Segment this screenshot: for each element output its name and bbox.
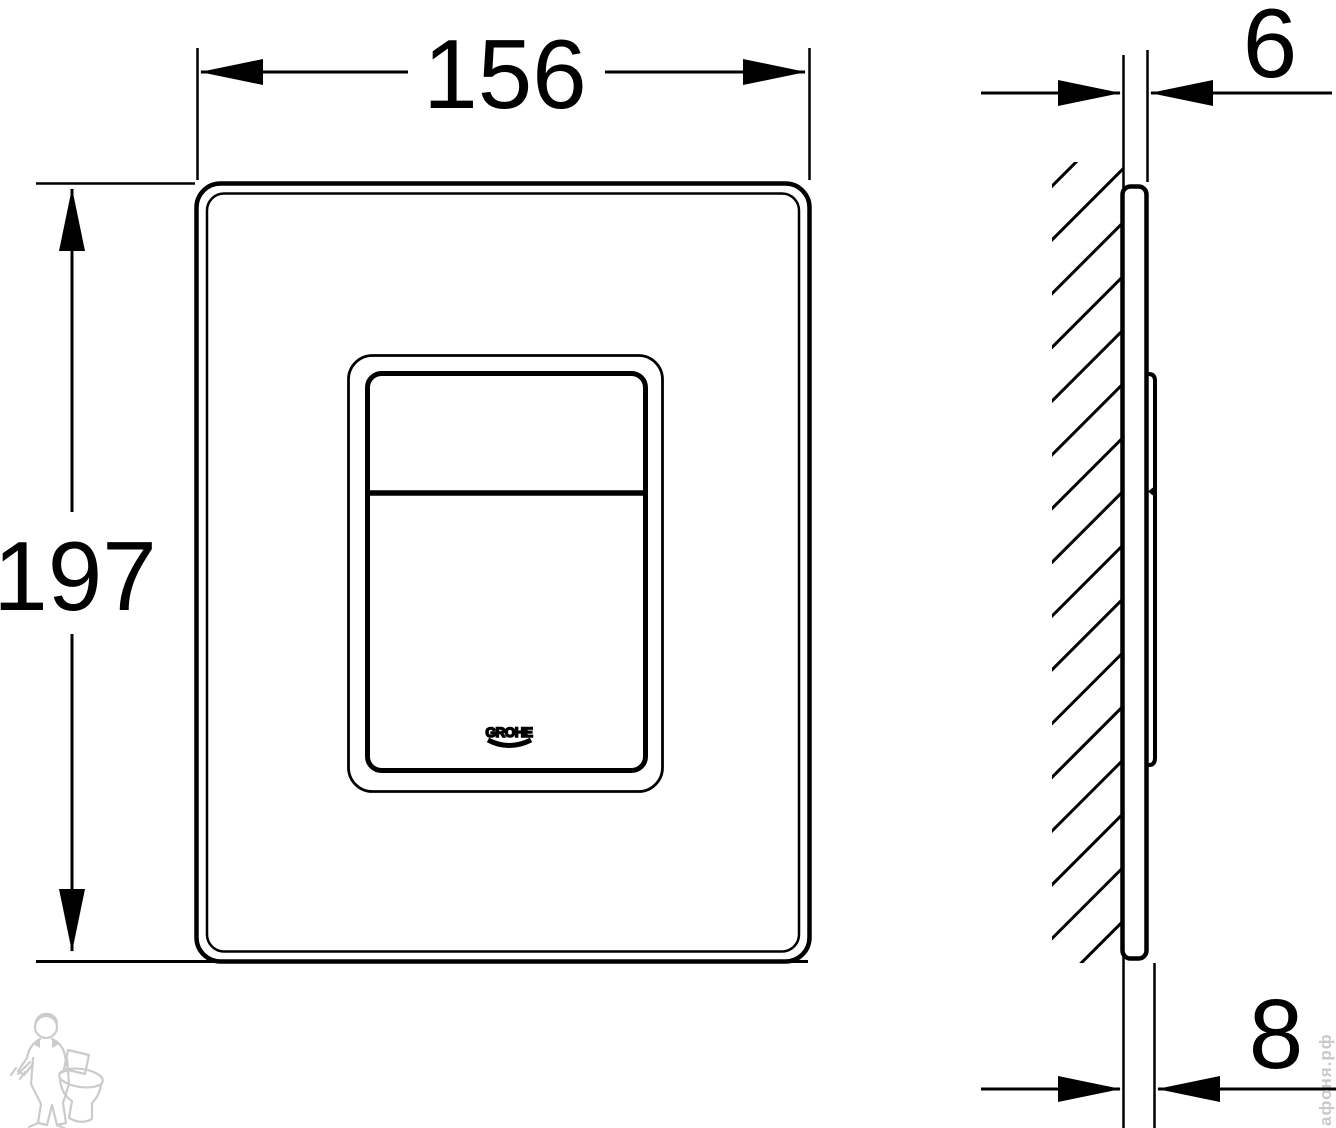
arrowhead-up	[59, 188, 85, 251]
dimension-height: 197	[0, 184, 808, 962]
technical-drawing-canvas: GROHE 156 197	[0, 0, 1336, 1128]
arrowhead-right	[1058, 1076, 1121, 1102]
arrowhead-down	[59, 889, 85, 952]
plate-bevel-line	[207, 194, 799, 952]
arrowhead-left	[1157, 1076, 1220, 1102]
dimension-height-value: 197	[0, 521, 157, 631]
plate-outline	[197, 184, 810, 962]
arrowhead-left	[200, 59, 263, 85]
grohe-logo-text: GROHE	[485, 725, 533, 740]
dimension-width-value: 156	[423, 19, 587, 129]
plumber-watermark-icon	[11, 1014, 104, 1128]
toilet-seat	[58, 1066, 104, 1090]
dimension-depth: 8	[981, 963, 1336, 1128]
site-watermark-text: афоня.рф	[1316, 1033, 1335, 1126]
button-split-notch	[1148, 485, 1156, 498]
wall-hatching	[1052, 162, 1123, 963]
grohe-logo: GROHE	[485, 725, 533, 746]
dimension-depth-value: 8	[1249, 979, 1304, 1089]
grohe-logo-swoosh	[488, 740, 531, 746]
side-view	[1052, 55, 1156, 1128]
plate-section	[1123, 187, 1147, 959]
dimension-thickness: 6	[981, 0, 1332, 182]
dimension-width: 156	[198, 19, 810, 180]
flush-button-outline	[368, 374, 646, 771]
arrowhead-left	[1150, 80, 1213, 106]
plumber-head	[35, 1016, 57, 1038]
dimension-drawing: GROHE 156 197	[0, 0, 1336, 1128]
front-view: GROHE	[197, 184, 810, 962]
arrowhead-right	[1058, 80, 1121, 106]
dimension-thickness-value: 6	[1243, 0, 1298, 98]
arrowhead-right	[743, 59, 806, 85]
